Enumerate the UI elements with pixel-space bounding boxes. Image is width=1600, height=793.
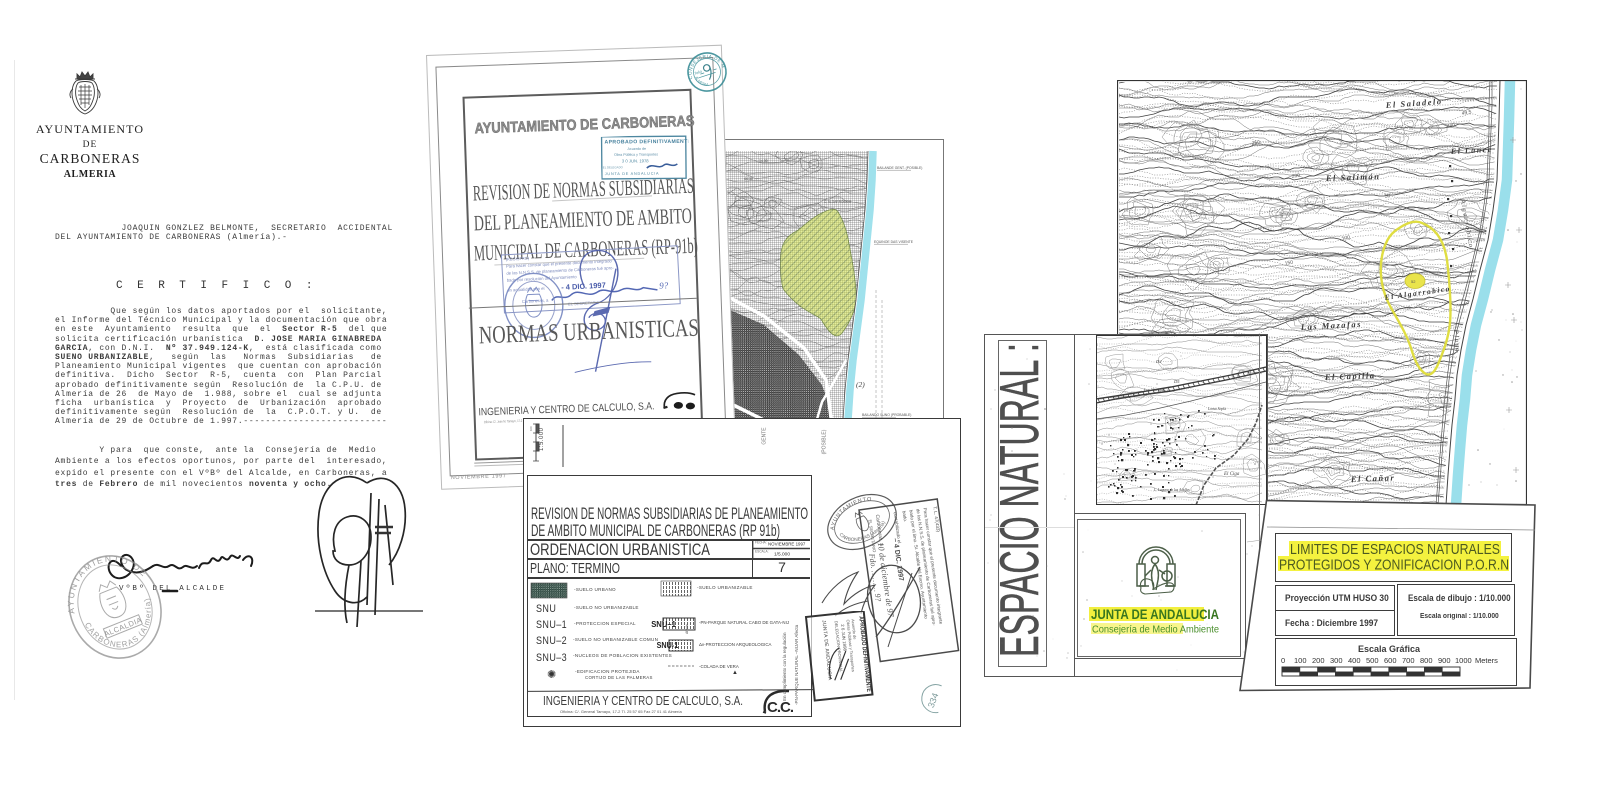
- svg-text:AYUNTAMIENTO DE: AYUNTAMIENTO DE: [60, 545, 154, 617]
- svg-text:1/5.000: 1/5.000: [774, 551, 790, 557]
- svg-text:PROTEGIDOS Y ZONIFICACION P.O.: PROTEGIDOS Y ZONIFICACION P.O.R.N: [1279, 558, 1509, 574]
- svg-text:Δv-PROTECCION ARQUEOLOGICA: Δv-PROTECCION ARQUEOLOGICA: [699, 642, 772, 647]
- svg-text:1:5.000: 1:5.000: [539, 427, 545, 451]
- svg-text:-PN-PARQUE NATURAL CABO DE GAT: -PN-PARQUE NATURAL CABO DE GATA-NIJ: [699, 620, 789, 625]
- svg-text:BAILANDO SUNO (PROBABLE): BAILANDO SUNO (PROBABLE): [862, 413, 911, 417]
- svg-text:800: 800: [1420, 656, 1433, 665]
- svg-text:1000: 1000: [1455, 656, 1472, 665]
- svg-text:0: 0: [1281, 656, 1285, 665]
- svg-text:C.C.: C.C.: [767, 699, 794, 716]
- svg-text:REVISION DE NORMAS SUBSIDIARIA: REVISION DE NORMAS SUBSIDIARIAS DE PLANE…: [531, 505, 808, 523]
- svg-text:100: 100: [530, 426, 533, 431]
- svg-text:EQUINOE DAS VISENTE: EQUINOE DAS VISENTE: [874, 240, 914, 244]
- svg-text:Meters: Meters: [1475, 656, 1498, 665]
- svg-text:44.35: 44.35: [744, 177, 753, 181]
- svg-text:SNU–2: SNU–2: [536, 635, 567, 647]
- svg-text:ESCALA:: ESCALA:: [755, 550, 769, 554]
- svg-text:SNU–1: SNU–1: [536, 619, 567, 631]
- svg-text:700: 700: [1402, 656, 1415, 665]
- svg-text:El Capilla: El Capilla: [1324, 370, 1376, 382]
- svg-text:400: 400: [1348, 656, 1361, 665]
- svg-text:El Salimán: El Salimán: [1325, 171, 1381, 183]
- svg-text:T. L. 47(433): T. L. 47(433): [932, 506, 941, 533]
- svg-text:▲: ▲: [732, 670, 738, 676]
- svg-text:14.30: 14.30: [759, 159, 768, 163]
- svg-text:(2): (2): [856, 380, 865, 389]
- svg-text:SNU-1: SNU-1: [657, 641, 679, 650]
- svg-text:EL DELEGADO: EL DELEGADO: [603, 165, 624, 169]
- svg-text:SNU–1: SNU–1: [651, 620, 676, 629]
- svg-text:DEL PLANEAMIENTO DE AMBITO: DEL PLANEAMIENTO DE AMBITO: [473, 203, 692, 236]
- svg-text:folio: folio: [694, 68, 703, 75]
- svg-text:900: 900: [1438, 656, 1451, 665]
- svg-text:CORTIJO DE LAS PALMERAS: CORTIJO DE LAS PALMERAS: [585, 675, 653, 680]
- svg-text:Afecta: Afecta: [685, 624, 689, 634]
- svg-text:APROBADO DEFINITIVAMENTE: APROBADO DEFINITIVAMENTE: [604, 139, 689, 146]
- svg-text:SNU–3: SNU–3: [536, 652, 567, 664]
- svg-text:BAILANDE GENT. (POSIBLE): BAILANDE GENT. (POSIBLE): [877, 166, 922, 170]
- svg-text:200: 200: [1312, 656, 1325, 665]
- svg-text:-NUCLEOS DE POBLACION EXISTENT: -NUCLEOS DE POBLACION EXISTENTES: [573, 653, 672, 658]
- svg-text:-COLADA DE VERA: -COLADA DE VERA: [699, 664, 739, 669]
- svg-text:ORDENACION URBANISTICA: ORDENACION URBANISTICA: [530, 541, 710, 559]
- svg-text:✺: ✺: [547, 669, 556, 681]
- svg-text:52: 52: [1411, 279, 1416, 284]
- svg-text:600: 600: [1384, 656, 1397, 665]
- svg-text:-EDIFICACION PROTEJIDA: -EDIFICACION PROTEJIDA: [575, 669, 640, 674]
- svg-text:100: 100: [1294, 656, 1307, 665]
- svg-text:Acuerdo de: Acuerdo de: [627, 147, 646, 151]
- svg-text:(REGISTRO): (REGISTRO): [506, 256, 530, 262]
- svg-text:C. ALGARROBICO: C. ALGARROBICO: [824, 200, 852, 204]
- svg-text:El Cañar: El Cañar: [1350, 472, 1396, 484]
- svg-text:3 0 JUN. 1978: 3 0 JUN. 1978: [622, 158, 649, 163]
- svg-text:-SUELO NO URBANIZABLE COMUN: -SUELO NO URBANIZABLE COMUN: [573, 637, 658, 642]
- svg-text:-PROTECCION ESPECIAL: -PROTECCION ESPECIAL: [574, 621, 636, 626]
- svg-text:PLANO: TERMINO: PLANO: TERMINO: [530, 560, 620, 577]
- svg-text:FECHA:: FECHA:: [755, 541, 767, 545]
- svg-text:Obra Pública y Transportes: Obra Pública y Transportes: [614, 153, 658, 157]
- svg-text:300: 300: [1330, 656, 1343, 665]
- svg-text:Oficina: C/. General Tamayo,: Oficina: C/. General Tamayo, 17-2 Tl. 25…: [560, 709, 682, 714]
- svg-text:CONSEJERIA DE MEDIO AMB.: CONSEJERIA DE MEDIO AMB.: [685, 50, 727, 82]
- svg-text:-SUELO NO URBANIZABLE: -SUELO NO URBANIZABLE: [574, 605, 639, 610]
- svg-text:SNU: SNU: [536, 603, 556, 615]
- svg-text:NOVIEMBRE 1997: NOVIEMBRE 1997: [768, 541, 806, 546]
- svg-text:334: 334: [926, 692, 941, 710]
- svg-text:DE AMBITO MUNICIPAL DE CARBONE: DE AMBITO MUNICIPAL DE CARBONERAS (RP 91…: [531, 522, 780, 540]
- svg-text:bado.: bado.: [902, 510, 909, 522]
- svg-text:-SUELO URBANIZABLE: -SUELO URBANIZABLE: [697, 585, 753, 590]
- svg-text:LIMITES DE ESPACIOS NATURALES: LIMITES DE ESPACIOS NATURALES: [1290, 542, 1500, 558]
- svg-text:-SUELO URBANO: -SUELO URBANO: [574, 587, 616, 592]
- svg-text:500: 500: [1366, 656, 1379, 665]
- svg-text:INGENIERIA Y CENTRO DE CALCULO: INGENIERIA Y CENTRO DE CALCULO, S.A.: [543, 694, 743, 708]
